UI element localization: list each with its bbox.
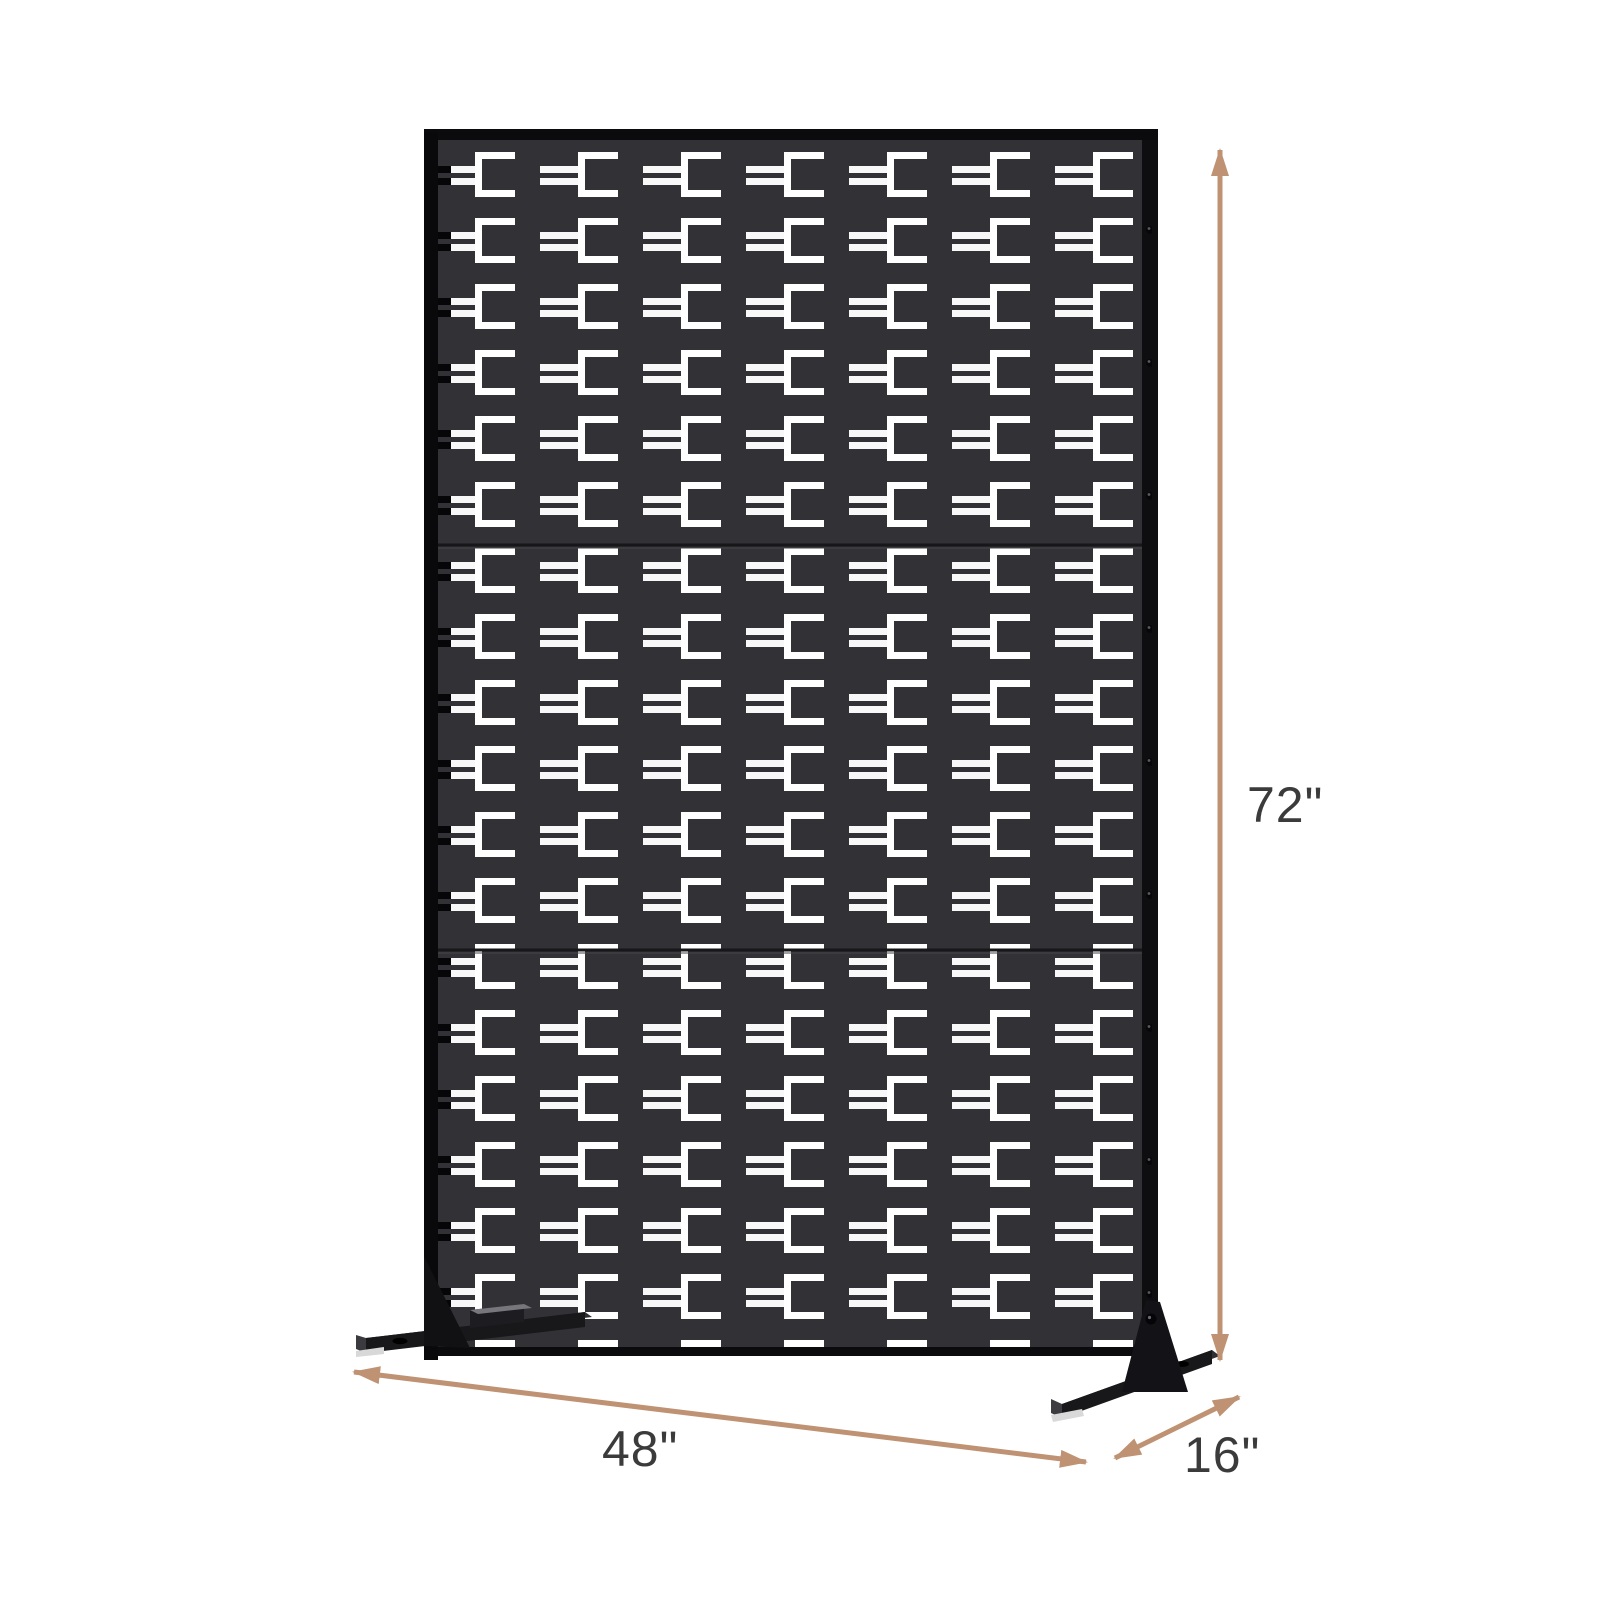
height-dimension-label: 72" [1247, 777, 1323, 833]
frame-screw-holes [1142, 180, 1158, 1340]
privacy-screen-dimension-diagram: 72" 48" 16" [0, 0, 1600, 1600]
panel-edge-notches [438, 146, 451, 1336]
width-dimension-arrow [354, 1372, 1086, 1462]
panel-left-edge [424, 132, 438, 1360]
depth-dimension-label: 16" [1184, 1427, 1260, 1483]
panel-face-cutout-pattern [438, 140, 1142, 1355]
width-dimension-label: 48" [602, 1421, 678, 1477]
right-foot-gusset-bolt-highlight [1148, 1316, 1151, 1319]
left-foot-bolt-hole [393, 1338, 408, 1344]
diagram-canvas: 72" 48" 16" [0, 0, 1600, 1600]
privacy-screen-panel [424, 129, 1158, 1388]
right-foot-gusset-bolt [1146, 1314, 1157, 1325]
panel-bottom-edge [438, 1347, 1142, 1356]
